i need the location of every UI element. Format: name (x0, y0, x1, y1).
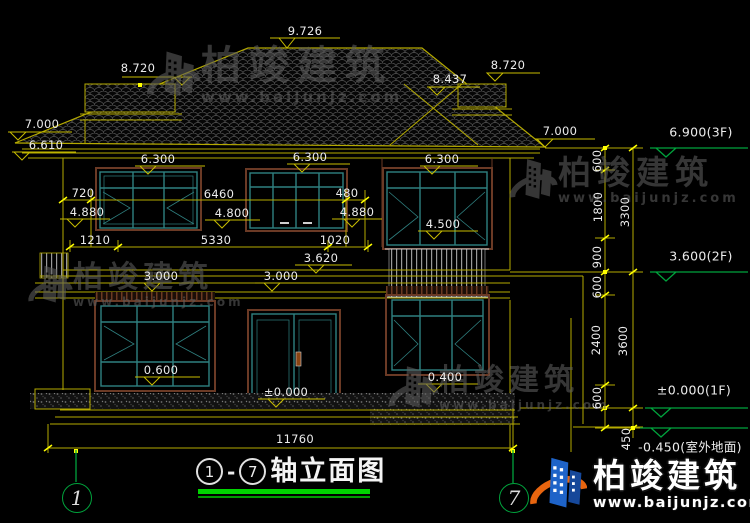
watermark-left-middle: 柏竣建筑 www.baijunjz.com (25, 260, 244, 312)
title-underline-thin (198, 496, 370, 498)
title-axis-end-bubble: 7 (239, 458, 266, 485)
watermark-url: www.baijunjz.com (201, 88, 402, 106)
drawing-title: 1 - 7 轴立面图 (196, 458, 386, 485)
axis-bubble-1: 1 (62, 483, 92, 513)
brand-logo: 柏竣建筑 www.baijunjz.com (527, 452, 750, 518)
title-underline (198, 489, 370, 494)
watermark-url: www.baijunjz.com (439, 398, 610, 412)
watermark-logo-icon (385, 360, 439, 418)
watermark-name: 柏竣建筑 (439, 366, 610, 396)
watermark-url: www.baijunjz.com (558, 191, 739, 206)
watermark-right-lower: 柏竣建筑 www.baijunjz.com (385, 360, 610, 418)
entry-door (248, 310, 340, 404)
lintel-hatch-right (386, 286, 489, 295)
watermark-url: www.baijunjz.com (73, 295, 244, 309)
watermark-logo-icon (25, 260, 73, 312)
watermark-name: 柏竣建筑 (558, 156, 739, 189)
watermark-name: 柏竣建筑 (201, 46, 402, 86)
cad-elevation-canvas: 柏竣建筑 www.baijunjz.com 柏竣建筑 www.baijunjz.… (0, 0, 750, 523)
brand-url: www.baijunjz.com (593, 495, 750, 511)
door-handle (296, 352, 301, 366)
watermark-right-upper: 柏竣建筑 www.baijunjz.com (506, 153, 739, 209)
watermark-name: 柏竣建筑 (73, 263, 244, 293)
watermark-logo-icon (506, 153, 558, 209)
title-axis-start-bubble: 1 (196, 458, 223, 485)
window-2f-left (96, 168, 201, 230)
brand-name: 柏竣建筑 (593, 459, 750, 492)
watermark-logo-icon (143, 45, 201, 107)
window-2f-tower (383, 168, 492, 249)
eave-band (22, 149, 540, 158)
title-text: 轴立面图 (270, 458, 386, 485)
title-separator: - (227, 460, 235, 484)
brand-logo-icon (527, 452, 587, 518)
axis-bubble-7: 7 (499, 483, 529, 513)
watermark-top-center: 柏竣建筑 www.baijunjz.com (143, 45, 402, 107)
